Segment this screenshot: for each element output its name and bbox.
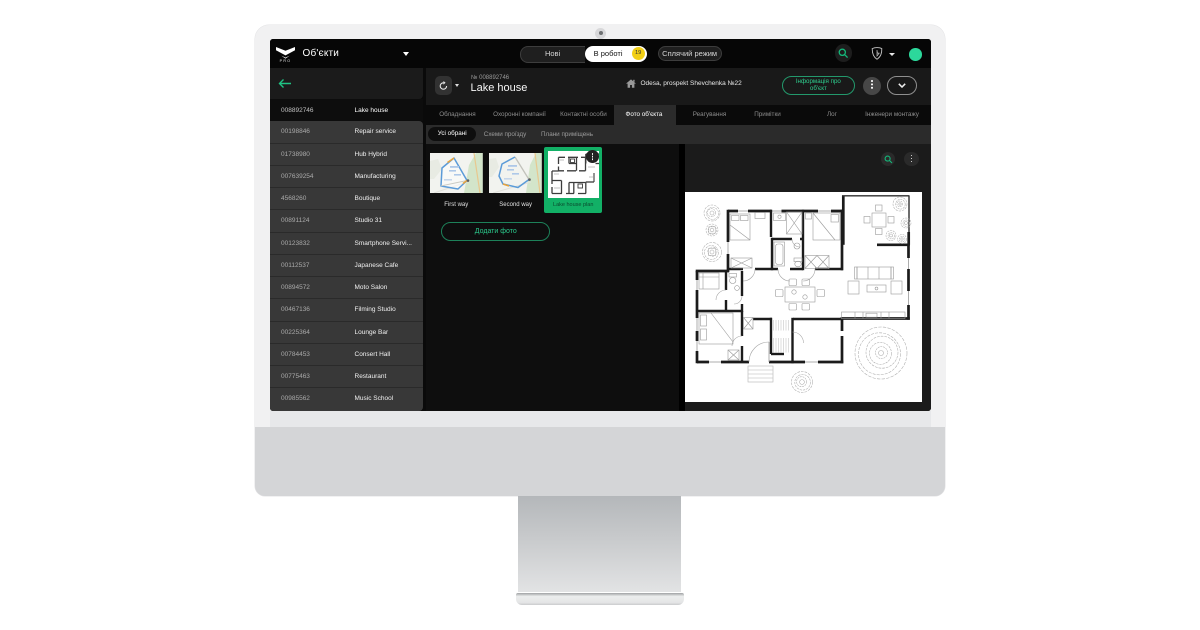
svg-text:PRO: PRO — [280, 59, 292, 62]
